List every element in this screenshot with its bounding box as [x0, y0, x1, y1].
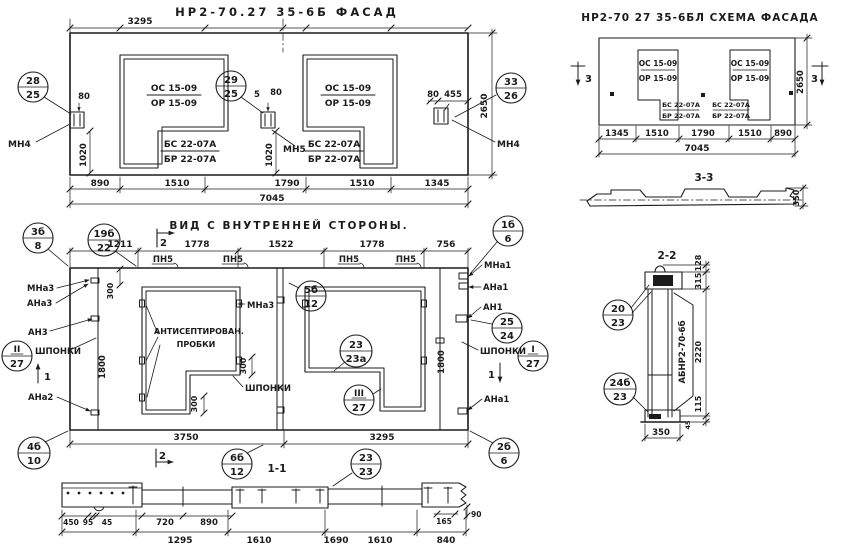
dim-1020: 1020 [79, 143, 89, 167]
section-1-1: 1-1 450 95 45 720 890 165 90 [59, 463, 481, 546]
svg-text:27: 27 [10, 359, 24, 370]
leader [57, 397, 90, 411]
dim-128: 128 [694, 254, 703, 271]
leader [468, 399, 482, 410]
door-mark: БР 22-07А [164, 155, 216, 165]
door-mark: БР 22-07А [662, 112, 700, 120]
dim-455: 455 [444, 90, 462, 100]
note-leaders [146, 305, 160, 397]
dim-1790: 1790 [691, 129, 715, 139]
svg-text:I: I [531, 345, 534, 355]
svg-text:23: 23 [611, 318, 625, 329]
dim-2650: 2650 [480, 93, 490, 118]
balloon-6b-12: 6б 12 [222, 445, 263, 479]
dim-3750: 3750 [173, 433, 198, 443]
panel-drawing: НР2-70.27 35-6б ФАСАД 3295 ОС 15-09 ОР 1… [0, 0, 848, 552]
door-mark: БР 22-07А [308, 155, 360, 165]
anchor-dot [789, 91, 793, 95]
inner-panel-outline [70, 268, 468, 430]
section-3-3-label: 3-3 [695, 172, 714, 184]
svg-text:3б: 3б [31, 226, 45, 238]
cut-marker-2-bottom: 2 [156, 449, 173, 467]
rib-lines [98, 268, 440, 430]
balloon-3b-8: 3б 8 [23, 223, 68, 266]
dim-1800: 1800 [98, 355, 108, 379]
svg-text:12: 12 [230, 467, 244, 478]
leader [462, 342, 478, 350]
svg-text:1б: 1б [501, 219, 515, 231]
dim-1345: 1345 [424, 179, 449, 189]
svg-text:3: 3 [585, 74, 592, 85]
section-2-2-label: 2-2 [658, 250, 677, 262]
note-probki-2: пробки [177, 340, 216, 349]
loop-pn5: ПН5 [339, 255, 359, 265]
rebar-t [129, 486, 137, 504]
dim-890: 890 [774, 129, 792, 139]
window-mark: ОР 15-09 [151, 99, 197, 109]
svg-text:4б: 4б [27, 441, 41, 453]
dim-1295: 1295 [167, 536, 192, 546]
door-mark: БС 22-07А [164, 140, 216, 150]
svg-text:8: 8 [35, 241, 42, 252]
anchor-label-mn5: МН5 [283, 145, 306, 155]
section-1-1-label: 1-1 [268, 463, 287, 475]
label-ana1: АНа1 [483, 283, 508, 293]
svg-text:III: III [354, 389, 364, 399]
dim-115: 115 [694, 395, 703, 412]
balloon-23-23: 23 23 [333, 449, 381, 486]
dim-1522: 1522 [268, 240, 293, 250]
label-mna3: МНа3 [27, 284, 54, 294]
balloon-II-27: II 27 [2, 341, 32, 371]
dim-3295: 3295 [127, 17, 152, 27]
dim-450: 450 [63, 518, 79, 527]
profile-notch [94, 507, 104, 511]
door-mark: БС 22-07А [308, 140, 360, 150]
dim-1345: 1345 [605, 129, 629, 139]
svg-text:1: 1 [44, 372, 51, 383]
dim-95: 95 [83, 518, 93, 527]
dim-1778: 1778 [184, 240, 209, 250]
scheme-view: НР2-70 27 35-6бл Схема фасада ОС 15-09 О… [571, 12, 828, 157]
svg-text:6б: 6б [230, 452, 244, 464]
svg-text:2б: 2б [497, 441, 511, 453]
inner-opening-1-frame [146, 291, 236, 410]
dim-7045: 7045 [684, 144, 709, 154]
label-ana3: АНа3 [27, 299, 52, 309]
svg-text:27: 27 [352, 403, 366, 414]
svg-text:25: 25 [224, 89, 238, 100]
anchor-mn4-left [70, 112, 84, 128]
drawing-she: НР2-70.27 35-6б ФАСАД 3295 ОС 15-09 ОР 1… [0, 0, 848, 552]
dim-1690: 1690 [323, 536, 348, 546]
leader [233, 376, 243, 387]
window-mark: ОС 15-09 [151, 84, 197, 94]
svg-text:22: 22 [97, 243, 111, 254]
body-lines [648, 289, 672, 417]
inner-title: Вид с внутренней стороны. [169, 219, 408, 232]
leader [36, 124, 70, 142]
anchor-dot [610, 92, 614, 96]
profile-block-2 [232, 487, 328, 508]
cut-marker-3-left: 3 [571, 62, 592, 85]
scheme-title: НР2-70 27 35-6бл Схема фасада [581, 12, 818, 24]
svg-text:10: 10 [27, 456, 41, 467]
balloon-4b-10: 4б 10 [18, 431, 68, 469]
door-mark: БР 22-07А [712, 112, 750, 120]
dim-840: 840 [437, 536, 456, 546]
dim-300: 300 [239, 357, 248, 374]
dim-1800: 1800 [437, 350, 447, 374]
dim-45: 45 [684, 420, 692, 430]
dim-1610: 1610 [367, 536, 392, 546]
dim-2220: 2220 [694, 340, 703, 363]
svg-text:II: II [14, 345, 21, 355]
cut-marker-2-top: 2 [157, 229, 174, 249]
leader [272, 130, 295, 146]
svg-text:23: 23 [613, 392, 627, 403]
svg-text:1: 1 [488, 370, 495, 381]
section-3-3-profile [587, 188, 796, 206]
dim-890: 890 [91, 179, 110, 189]
anchor-label-mn4: МН4 [497, 140, 520, 150]
svg-text:29: 29 [224, 75, 238, 86]
panel-mark: АБНР2-70-6б [677, 320, 688, 383]
dim-1610: 1610 [246, 536, 271, 546]
loop-pn5: ПН5 [153, 255, 173, 265]
label-mna3: МНа3 [247, 301, 274, 311]
cut-marker-1-right: 1 [488, 363, 500, 382]
balloon-2b-6: 2б 6 [470, 431, 519, 468]
cut-marker-3-right: 3 [811, 62, 828, 85]
dim-80: 80 [270, 88, 282, 98]
balloon-25-24: 25 24 [471, 313, 522, 343]
svg-text:24б: 24б [610, 377, 631, 389]
svg-text:19б: 19б [94, 228, 115, 240]
bottom-cap-core [649, 414, 661, 419]
top-cap-core [653, 275, 673, 286]
dim-80: 80 [78, 92, 90, 102]
profile-web-2 [328, 486, 422, 506]
window-mark: ОР 15-09 [639, 74, 677, 83]
svg-text:28: 28 [26, 76, 40, 87]
dim-5: 5 [254, 90, 260, 100]
dim-300: 300 [190, 395, 199, 412]
window-mark: ОР 15-09 [731, 74, 769, 83]
svg-text:2: 2 [159, 451, 166, 462]
label-mna1: МНа1 [484, 261, 511, 271]
dim-165: 165 [436, 517, 452, 526]
window-mark: ОС 15-09 [731, 59, 769, 68]
dim-90: 90 [471, 510, 481, 519]
balloon-I-27: I 27 [518, 341, 548, 371]
window-mark: ОР 15-09 [325, 99, 371, 109]
balloon-33-26: 33 26 [455, 73, 526, 117]
svg-text:23: 23 [349, 340, 363, 351]
dim-350: 350 [792, 189, 801, 206]
anchor-mn4-right [434, 108, 448, 124]
profile-web-1 [142, 487, 232, 506]
balloon-23-23a: 23 23а [334, 335, 372, 371]
dim-1510: 1510 [645, 129, 669, 139]
label-shponki: шпонки [245, 384, 291, 394]
svg-text:23: 23 [359, 453, 373, 464]
svg-text:23: 23 [359, 467, 373, 478]
svg-text:6: 6 [501, 456, 508, 467]
dim-2650: 2650 [796, 70, 806, 94]
svg-text:26: 26 [504, 91, 518, 102]
leader [468, 307, 481, 318]
label-an3: АН3 [28, 328, 48, 338]
svg-text:6: 6 [505, 234, 512, 245]
dim-1790: 1790 [274, 179, 299, 189]
ext-lines [70, 430, 468, 448]
svg-text:33: 33 [504, 77, 518, 88]
inner-opening-2-frame [309, 291, 421, 407]
svg-text:25: 25 [26, 90, 40, 101]
label-ana2: АНа2 [28, 393, 53, 403]
inner-view: Вид с внутренней стороны. 1211 1778 1522… [2, 216, 548, 486]
dim-7045: 7045 [259, 194, 284, 204]
door-mark: БС 22-07А [662, 101, 700, 109]
leader [452, 120, 495, 142]
rebar-t-marks [424, 487, 452, 503]
dim-315: 315 [694, 272, 703, 289]
label-ana1: АНа1 [484, 395, 509, 405]
svg-text:12: 12 [304, 299, 318, 310]
dim-350: 350 [652, 428, 670, 438]
loop-pn5: ПН5 [223, 255, 243, 265]
balloon-24b-23: 24б 23 [604, 373, 648, 412]
lifting-loop [655, 266, 665, 272]
leader [469, 265, 482, 276]
dim-3295: 3295 [369, 433, 394, 443]
leader [70, 338, 96, 350]
svg-text:23а: 23а [346, 354, 367, 365]
window-mark: ОС 15-09 [325, 84, 371, 94]
leader [57, 280, 89, 288]
section-2-2: 2-2 АБНР2-70-6б 128 315 2220 115 45 350 … [603, 250, 710, 441]
note-probki-1: Антисептирован. [154, 327, 244, 336]
ext-lines [70, 177, 468, 193]
dim-1510: 1510 [738, 129, 762, 139]
rebar-dots [67, 492, 125, 495]
anchor-mn5-mid [261, 112, 275, 128]
facade-title: НР2-70.27 35-6б ФАСАД [175, 5, 399, 19]
door-mark: БС 22-07А [712, 101, 750, 109]
anchor-dot [701, 93, 705, 97]
anchor-label-mn4: МН4 [8, 140, 31, 150]
dim-1510: 1510 [164, 179, 189, 189]
dim-890: 890 [200, 518, 218, 528]
balloon-20-23: 20 23 [603, 285, 651, 330]
balloon-28-25: 28 25 [18, 72, 71, 114]
dim-1020: 1020 [265, 143, 275, 167]
facade-view: НР2-70.27 35-6б ФАСАД 3295 ОС 15-09 ОР 1… [8, 5, 526, 208]
leader [50, 319, 92, 331]
dim-45: 45 [102, 518, 112, 527]
label-an1: АН1 [483, 303, 503, 313]
dim-1778: 1778 [359, 240, 384, 250]
svg-text:27: 27 [526, 359, 540, 370]
inner-opening-1 [142, 287, 240, 414]
svg-text:3: 3 [811, 74, 818, 85]
balloon-III-27: III 27 [344, 385, 381, 415]
cut-marker-1-left: 1 [38, 364, 51, 383]
svg-text:20: 20 [611, 304, 625, 315]
dim-720: 720 [156, 518, 174, 528]
svg-text:24: 24 [500, 331, 514, 342]
dim-1510: 1510 [349, 179, 374, 189]
section-3-3: 3-3 350 [580, 172, 808, 209]
loop-pn5: ПН5 [396, 255, 416, 265]
window-mark: ОС 15-09 [639, 59, 677, 68]
rebar-t-marks [236, 489, 324, 503]
dim-300: 300 [106, 282, 115, 299]
profile-block-3 [422, 483, 466, 507]
svg-text:2: 2 [160, 238, 167, 249]
loop-labels: ПН5 ПН5 ПН5 ПН5 [152, 255, 421, 268]
dim-756: 756 [437, 240, 456, 250]
balloon-5b-12: 5б 12 [289, 281, 326, 311]
svg-text:25: 25 [500, 317, 514, 328]
svg-text:5б: 5б [304, 284, 318, 296]
